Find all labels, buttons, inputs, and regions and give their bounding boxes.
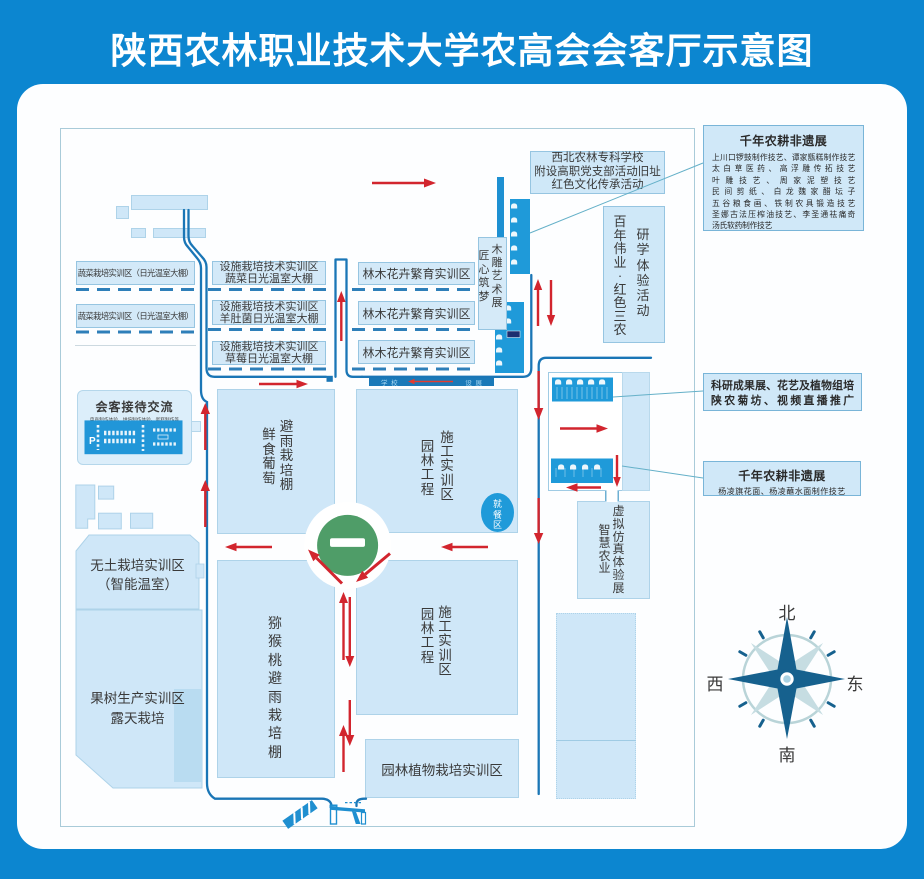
svg-text:P: P [89, 436, 96, 447]
